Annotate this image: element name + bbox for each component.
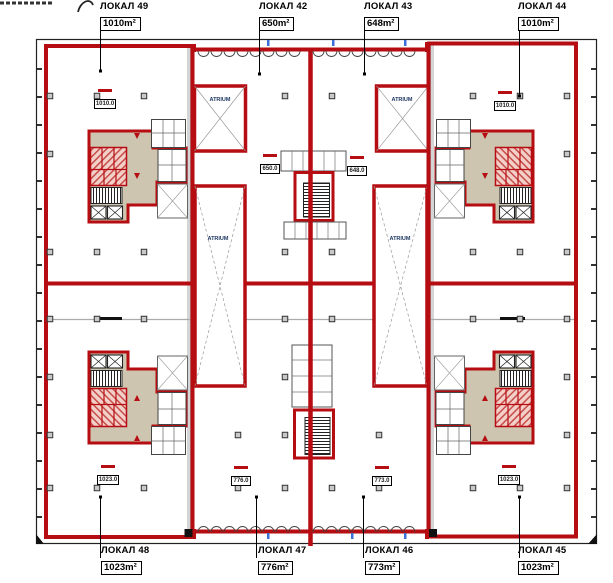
unit-label-46: ЛОКАЛ 46 773m² <box>365 546 413 575</box>
area-stamp-48: 1023.0 <box>93 465 123 485</box>
unit-label-44: ЛОКАЛ 44 1010m² <box>518 2 566 31</box>
svg-text:ATRIUM: ATRIUM <box>210 97 231 103</box>
unit-label-49: ЛОКАЛ 49 1010m² <box>100 2 148 31</box>
atrium-tall-right: ATRIUM <box>374 186 427 386</box>
stamp-title-bar <box>101 465 115 468</box>
unit-label-48: ЛОКАЛ 48 1023m² <box>101 546 149 575</box>
svg-text:ATRIUM: ATRIUM <box>392 97 413 103</box>
area-stamp-45: 1023.0 <box>494 465 524 485</box>
central-core-top <box>281 151 346 239</box>
area-stamp-44: 1010.0 <box>490 91 520 111</box>
floor-plan: ATRIUM ATRIUM ATRIUM ATRIUM <box>0 0 613 583</box>
svg-text:ATRIUM: ATRIUM <box>390 236 411 242</box>
area-stamp-47: 776.0 <box>226 466 256 486</box>
atrium-tall-left: ATRIUM <box>195 186 245 386</box>
stamp-title-bar <box>375 466 389 469</box>
unit-label-47: ЛОКАЛ 47 776m² <box>258 546 306 575</box>
stamp-title-bar <box>234 466 248 469</box>
unit-label-45: ЛОКАЛ 45 1023m² <box>518 546 566 575</box>
area-stamp-49: 1010.0 <box>90 89 120 109</box>
floor-plan-canvas: ATRIUM ATRIUM ATRIUM ATRIUM <box>0 0 613 583</box>
area-stamp-43: 648.0 <box>342 156 372 176</box>
atrium-top-left: ATRIUM <box>195 86 246 151</box>
unit-label-43: ЛОКАЛ 43 648m² <box>364 2 412 31</box>
area-stamp-42: 650.0 <box>255 154 285 174</box>
atrium-top-right: ATRIUM <box>377 86 429 151</box>
stamp-title-bar <box>498 91 512 94</box>
scale-fragment <box>0 1 93 12</box>
area-stamp-46: 773.0 <box>367 466 397 486</box>
unit-label-42: ЛОКАЛ 42 650m² <box>259 2 307 31</box>
svg-text:ATRIUM: ATRIUM <box>208 236 229 242</box>
stamp-title-bar <box>350 156 364 159</box>
stamp-title-bar <box>98 89 112 92</box>
stamp-title-bar <box>263 154 277 157</box>
stamp-title-bar <box>502 465 516 468</box>
